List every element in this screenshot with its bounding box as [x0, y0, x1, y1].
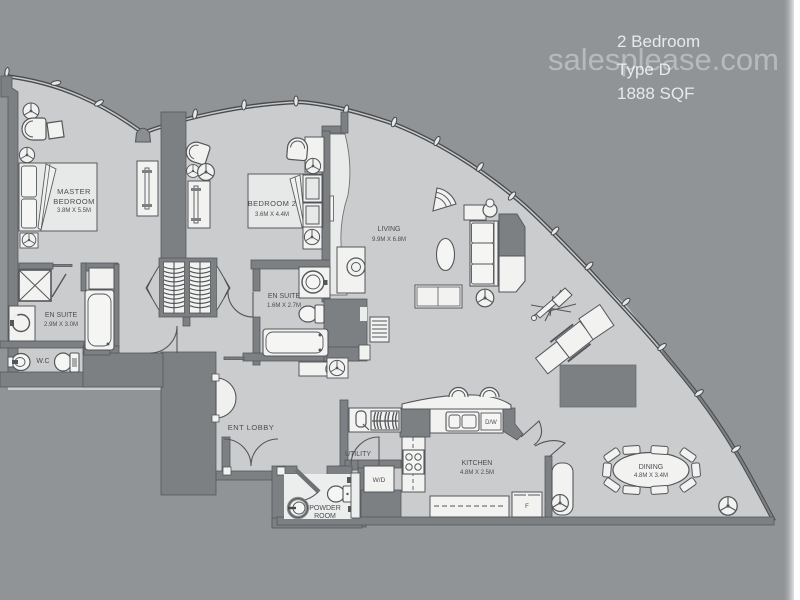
- svg-text:4.8M X 2.5M: 4.8M X 2.5M: [460, 470, 494, 476]
- svg-text:LIVING: LIVING: [378, 226, 401, 233]
- svg-text:1.6M X 2.7M: 1.6M X 2.7M: [267, 303, 301, 309]
- svg-text:EN SUITE: EN SUITE: [268, 293, 301, 300]
- svg-text:3.8M X 5.5M: 3.8M X 5.5M: [57, 208, 91, 214]
- svg-text:salesplease.com: salesplease.com: [548, 42, 779, 77]
- svg-text:W.C: W.C: [36, 358, 49, 365]
- svg-text:BEDROOM: BEDROOM: [53, 197, 95, 206]
- svg-text:BEDROOM 2: BEDROOM 2: [248, 199, 297, 208]
- svg-text:1888 SQF: 1888 SQF: [617, 84, 695, 103]
- svg-text:DINING: DINING: [639, 464, 664, 471]
- svg-text:9.9M X 6.8M: 9.9M X 6.8M: [372, 237, 406, 243]
- svg-text:UTILITY: UTILITY: [345, 451, 371, 458]
- svg-text:POWDER: POWDER: [309, 505, 341, 512]
- svg-text:KITCHEN: KITCHEN: [462, 460, 493, 467]
- svg-text:4.8M X 3.4M: 4.8M X 3.4M: [634, 473, 668, 479]
- svg-text:ROOM: ROOM: [314, 513, 336, 520]
- svg-text:ENT LOBBY: ENT LOBBY: [228, 423, 274, 432]
- svg-text:W/D: W/D: [373, 477, 386, 484]
- svg-text:MASTER: MASTER: [57, 187, 91, 196]
- svg-text:D/W: D/W: [485, 420, 497, 426]
- svg-text:3.6M X 4.4M: 3.6M X 4.4M: [255, 212, 289, 218]
- svg-text:F: F: [525, 504, 529, 510]
- svg-text:2.9M X 3.0M: 2.9M X 3.0M: [44, 322, 78, 328]
- svg-text:EN SUITE: EN SUITE: [45, 312, 78, 319]
